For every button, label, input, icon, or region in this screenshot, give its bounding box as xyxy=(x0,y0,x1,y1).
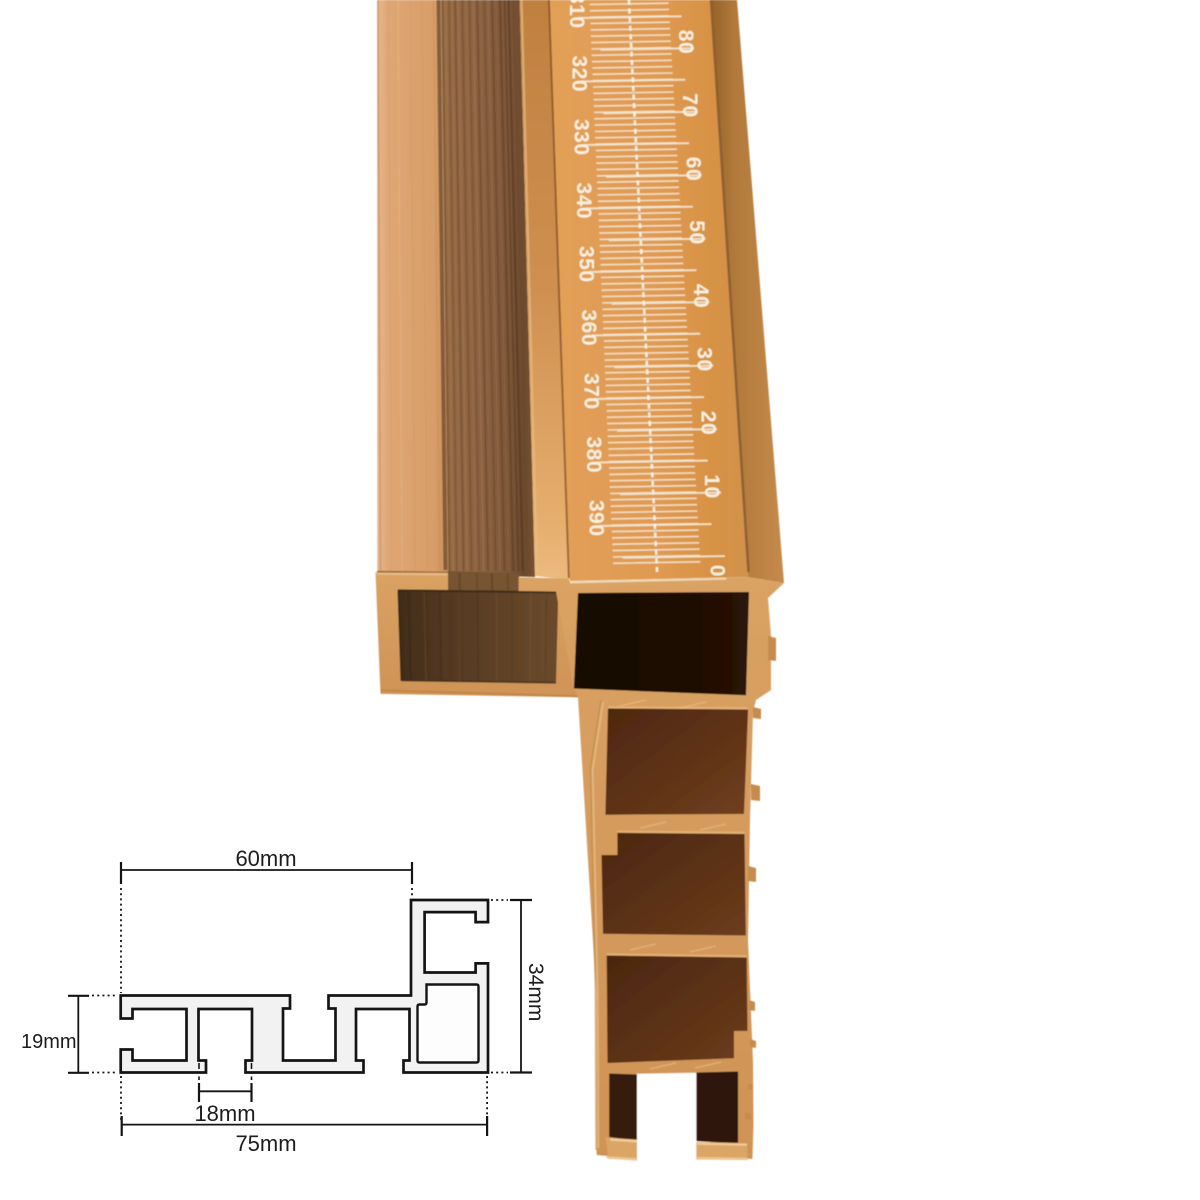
svg-text:70: 70 xyxy=(678,93,701,117)
svg-text:370: 370 xyxy=(579,373,602,410)
svg-text:350: 350 xyxy=(575,246,598,283)
svg-text:20: 20 xyxy=(696,411,719,435)
svg-text:360: 360 xyxy=(577,310,600,347)
svg-text:10: 10 xyxy=(700,474,723,498)
svg-text:19mm: 19mm xyxy=(21,1031,77,1053)
svg-text:390: 390 xyxy=(584,500,607,537)
svg-text:34mm: 34mm xyxy=(524,963,547,1021)
svg-text:18mm: 18mm xyxy=(194,1101,255,1126)
svg-text:50: 50 xyxy=(685,220,708,244)
svg-text:60mm: 60mm xyxy=(235,846,296,871)
svg-text:75mm: 75mm xyxy=(235,1131,296,1156)
svg-text:380: 380 xyxy=(582,437,605,474)
svg-text:330: 330 xyxy=(570,119,593,156)
svg-text:60: 60 xyxy=(682,157,705,181)
svg-text:320: 320 xyxy=(567,56,590,93)
svg-text:310: 310 xyxy=(565,0,588,29)
svg-text:80: 80 xyxy=(674,30,697,54)
svg-text:30: 30 xyxy=(693,347,716,371)
svg-text:0: 0 xyxy=(705,565,728,577)
svg-text:340: 340 xyxy=(572,183,595,220)
svg-text:40: 40 xyxy=(689,284,712,308)
